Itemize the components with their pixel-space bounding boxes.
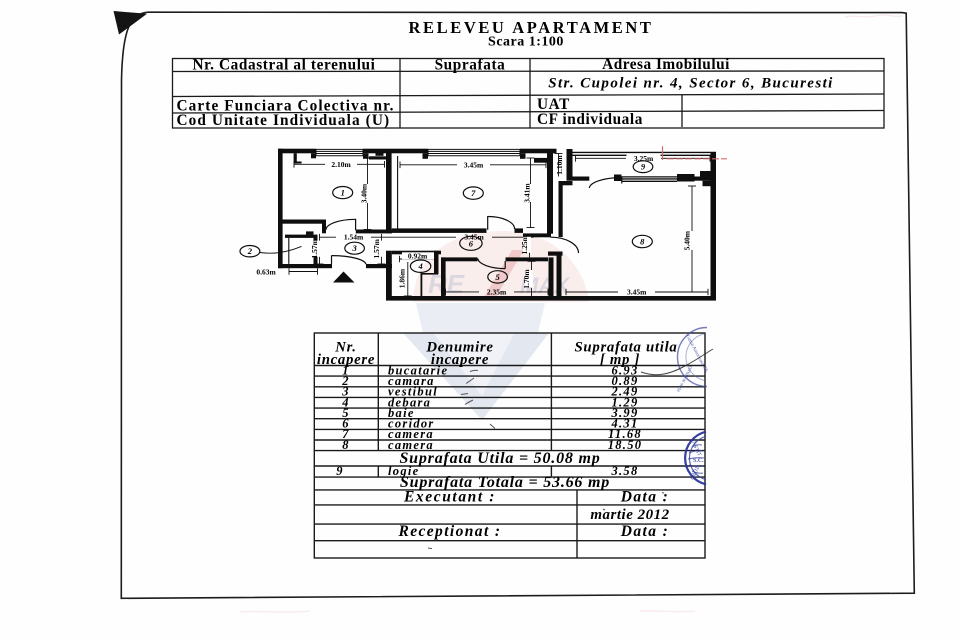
svg-text:6: 6: [469, 239, 474, 249]
svg-text:1.70m: 1.70m: [522, 269, 531, 289]
svg-text:4: 4: [417, 261, 422, 271]
svg-text:0.63m: 0.63m: [256, 267, 276, 276]
svg-text:3.58: 3.58: [610, 464, 638, 478]
svg-text:Str. Cupolei nr. 4, Sector 6,: Str. Cupolei nr. 4, Sector 6, Bucuresti: [548, 75, 834, 91]
svg-text:2: 2: [247, 246, 253, 256]
svg-text:1.57m: 1.57m: [372, 238, 381, 258]
svg-text:7: 7: [471, 188, 476, 198]
svg-text:Suprafata: Suprafata: [435, 56, 506, 73]
svg-text:Data :: Data :: [620, 523, 669, 540]
svg-text:martie 2012: martie 2012: [590, 507, 669, 523]
svg-text:0.92m: 0.92m: [408, 251, 428, 260]
svg-text:S.C.: S.C.: [693, 458, 704, 464]
svg-text:8: 8: [640, 237, 645, 247]
svg-text:2.35m: 2.35m: [487, 288, 507, 297]
svg-text:Adresa Imobilului: Adresa Imobilului: [602, 56, 730, 73]
svg-text:1.86m: 1.86m: [398, 268, 407, 288]
svg-text:Nr. Cadastral al terenului: Nr. Cadastral al terenului: [192, 57, 375, 74]
svg-text:Scara 1:100: Scara 1:100: [488, 35, 564, 50]
svg-text:3.45m: 3.45m: [464, 161, 484, 170]
svg-text:Cod Unitate Individuala (U): Cod Unitate Individuala (U): [177, 112, 391, 129]
svg-text:5: 5: [495, 272, 500, 282]
svg-text:3: 3: [351, 243, 357, 253]
svg-text:Receptionat :: Receptionat :: [397, 523, 501, 540]
svg-text:1.25m: 1.25m: [520, 234, 529, 254]
svg-text:Data :: Data :: [620, 489, 669, 506]
svg-text:1.10m: 1.10m: [555, 155, 564, 175]
svg-text:Executant :: Executant :: [403, 489, 496, 506]
svg-text:1.54m: 1.54m: [344, 233, 364, 242]
svg-text:5.40m: 5.40m: [683, 230, 692, 250]
svg-text:1: 1: [341, 188, 345, 198]
svg-text:2.10m: 2.10m: [331, 160, 351, 169]
svg-text:3.41m: 3.41m: [523, 183, 532, 203]
svg-text:Suprafata Utila = 50.08 mp: Suprafata Utila = 50.08 mp: [399, 450, 600, 467]
svg-text:8: 8: [342, 438, 350, 452]
svg-text:9: 9: [336, 464, 344, 478]
svg-text:3.45m: 3.45m: [627, 288, 647, 297]
svg-text:CF individuala: CF individuala: [537, 111, 643, 128]
svg-text:18.50: 18.50: [608, 438, 643, 452]
svg-text:3.40m: 3.40m: [360, 183, 369, 203]
svg-text:1.57m: 1.57m: [310, 238, 319, 258]
